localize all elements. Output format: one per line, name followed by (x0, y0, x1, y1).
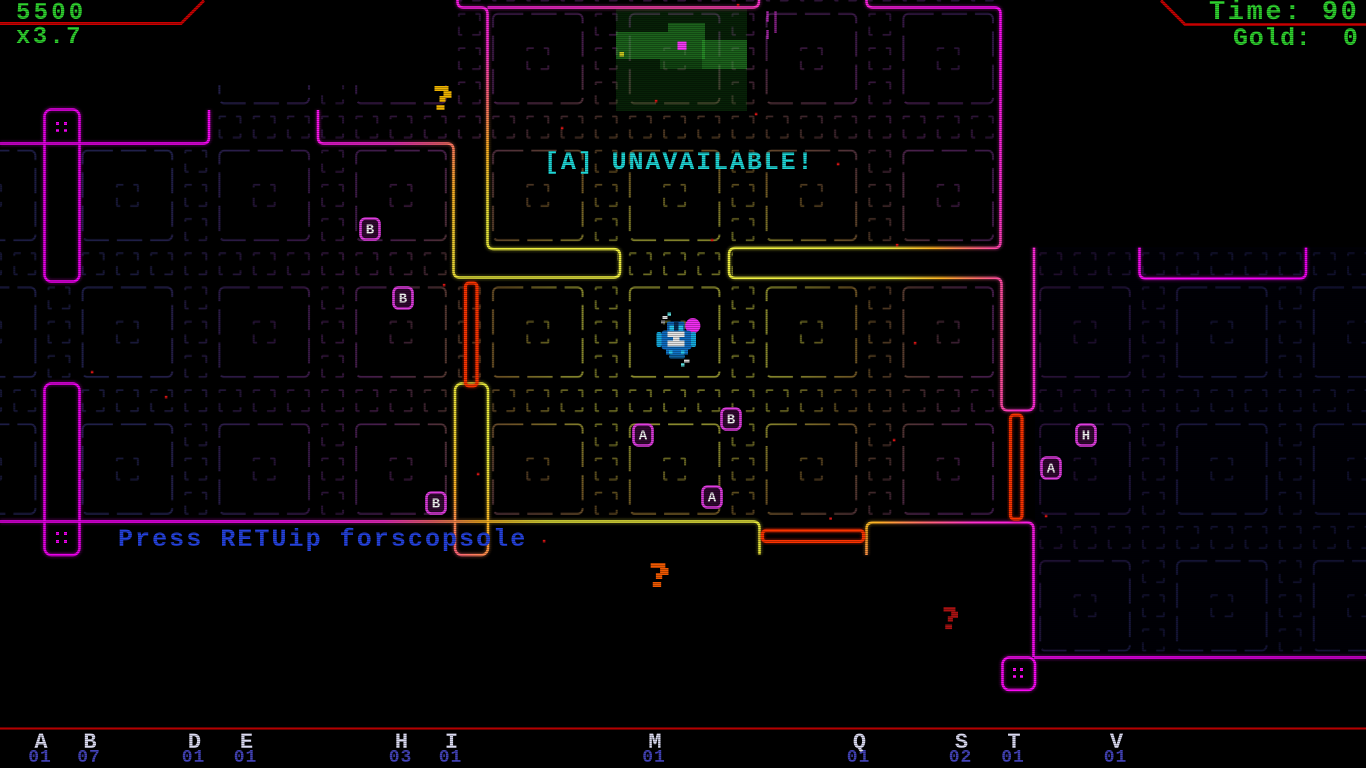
svg-text:B: B (366, 223, 375, 239)
svg-text:A: A (708, 491, 717, 507)
svg-text:B: B (727, 413, 736, 429)
svg-text:B: B (399, 292, 408, 308)
svg-text:A: A (639, 429, 648, 445)
svg-text:H: H (1082, 429, 1090, 445)
svg-text:B: B (432, 497, 441, 513)
svg-text:A: A (1047, 462, 1056, 478)
